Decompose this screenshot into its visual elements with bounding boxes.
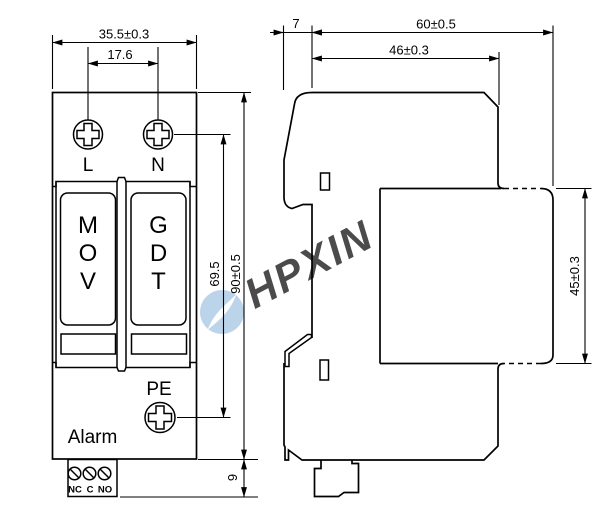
alarm-contact-nc-label: NC [68, 485, 82, 496]
gdt-letter-g: G [149, 212, 168, 239]
gdt-module: G D T [131, 193, 187, 354]
dim-overall-depth-label: 60±0.5 [416, 17, 456, 32]
side-profile [284, 93, 553, 497]
mov-module: M O V [61, 193, 116, 354]
mov-letter-o: O [79, 240, 98, 267]
front-body [53, 93, 197, 460]
mov-letter-v: V [80, 268, 96, 295]
dim-overall-height-label: 90±0.5 [228, 254, 243, 294]
spd-dimension-drawing: HPXIN 35.5±0.3 17.6 L N [0, 0, 602, 517]
module-outlines [53, 178, 197, 372]
module-block-side [380, 189, 501, 364]
alarm-terminal-block: NC C NO [68, 460, 117, 497]
dim-screw-centers-label: 69.5 [207, 261, 222, 286]
alarm-screw-nc-icon [68, 467, 81, 480]
gdt-letter-t: T [151, 268, 166, 295]
dim-body-depth: 46±0.3 [312, 43, 499, 106]
gdt-letter-d: D [150, 240, 167, 267]
alarm-contact-no-label: NO [98, 485, 112, 496]
dim-overall-depth: 60±0.5 [312, 17, 553, 187]
terminal-l-label: L [83, 155, 94, 176]
dim-screw-centers: 69.5 [174, 135, 231, 418]
alarm-screw-c-icon [83, 467, 96, 480]
gdt-status-indicator [132, 334, 187, 354]
dim-overall-width-label: 35.5±0.3 [99, 27, 150, 42]
dim-body-depth-label: 46±0.3 [389, 43, 429, 58]
dim-module-height: 45±0.3 [556, 189, 592, 364]
dim-screw-spacing-label: 17.6 [107, 47, 132, 62]
side-slot-upper [321, 173, 330, 190]
mov-letter-m: M [78, 212, 98, 239]
side-slot-lower [320, 360, 329, 380]
l-terminal-screw-icon [74, 120, 103, 149]
dim-terminal-depth-label: 9 [225, 474, 240, 481]
terminal-n-label: N [151, 155, 165, 176]
alarm-label: Alarm [68, 427, 118, 448]
technical-drawing-page: HPXIN 35.5±0.3 17.6 L N [0, 0, 602, 517]
din-rail-clip [285, 335, 312, 367]
dim-module-height-label: 45±0.3 [567, 256, 582, 296]
n-terminal-screw-icon [144, 120, 173, 149]
alarm-contact-c-label: C [87, 485, 94, 496]
front-view: 35.5±0.3 17.6 L N [53, 27, 259, 498]
watermark-text: HPXIN [237, 211, 381, 317]
dim-terminal-depth: 9 [120, 460, 258, 498]
dim-screw-spacing: 17.6 [88, 47, 158, 120]
terminal-block-side [315, 460, 359, 497]
terminal-pe-label: PE [146, 379, 171, 400]
dim-clip: 7 [270, 16, 324, 90]
pe-terminal-screw-icon [145, 403, 175, 433]
mov-status-indicator [61, 334, 116, 354]
dim-clip-label: 7 [292, 16, 299, 31]
alarm-screw-no-icon [98, 467, 111, 480]
